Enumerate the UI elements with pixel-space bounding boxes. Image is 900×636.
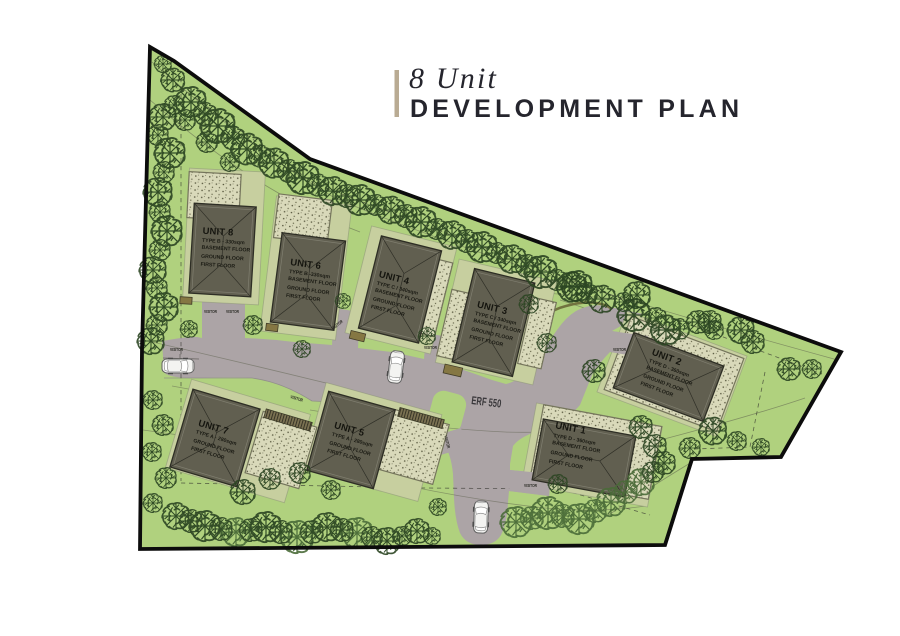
svg-text:UNIT 8: UNIT 8 <box>202 225 234 238</box>
svg-text:VISITOR: VISITOR <box>170 347 184 352</box>
svg-text:DEVELOPMENT PLAN: DEVELOPMENT PLAN <box>410 95 743 123</box>
svg-text:VISITOR: VISITOR <box>424 345 438 350</box>
svg-text:VISITOR: VISITOR <box>613 347 627 352</box>
svg-text:8 Unit: 8 Unit <box>409 62 498 95</box>
svg-text:VISITOR: VISITOR <box>524 483 538 488</box>
svg-text:VISITOR: VISITOR <box>204 309 218 314</box>
svg-text:VISITOR: VISITOR <box>226 309 240 314</box>
